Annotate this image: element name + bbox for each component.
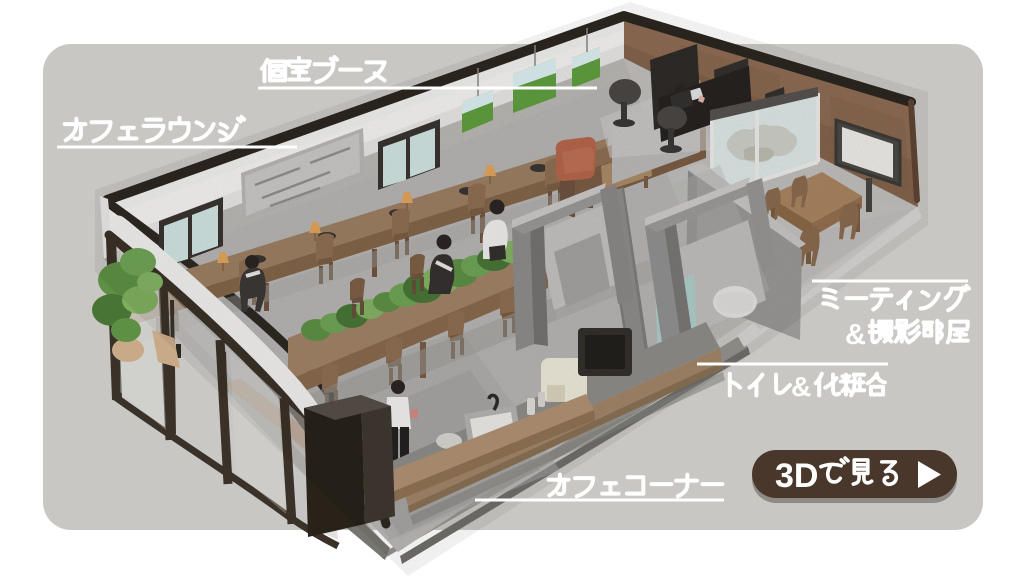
svg-text:&: & [791,371,811,402]
svg-text:&: & [845,319,866,351]
svg-text:3D: 3D [775,457,818,495]
